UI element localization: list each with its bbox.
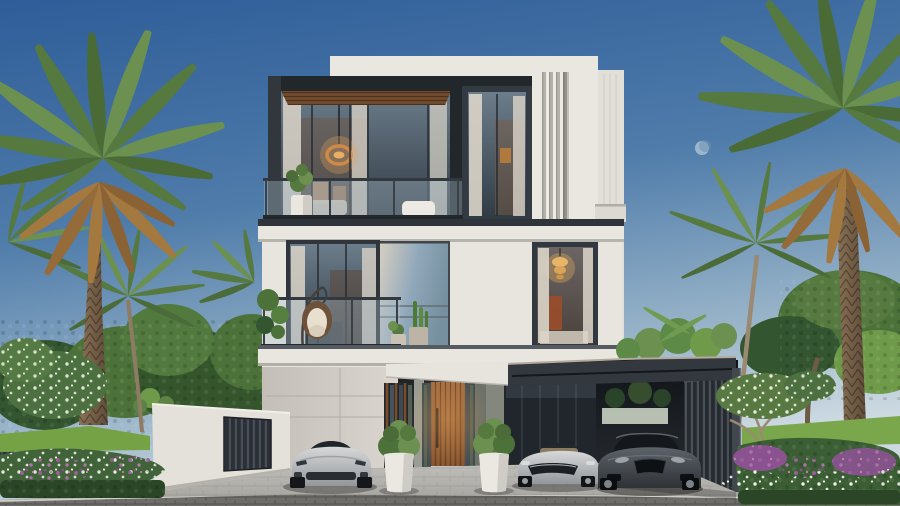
floor-2: [256, 240, 624, 366]
hedge-right: [738, 490, 900, 504]
rust-artwork: [549, 296, 562, 330]
louver-fin-panel: [541, 72, 569, 225]
floor2-right-window: [532, 242, 598, 348]
slat-gate: [224, 417, 271, 471]
floor3-right-window: [462, 86, 532, 223]
balcony-seat: [402, 201, 435, 217]
floor-slab-band: [258, 226, 624, 240]
rendering-canvas: Daytime 3D architectural rendering of a …: [0, 0, 900, 506]
villa-architectural-rendering: Daytime 3D architectural rendering of a …: [0, 0, 900, 506]
